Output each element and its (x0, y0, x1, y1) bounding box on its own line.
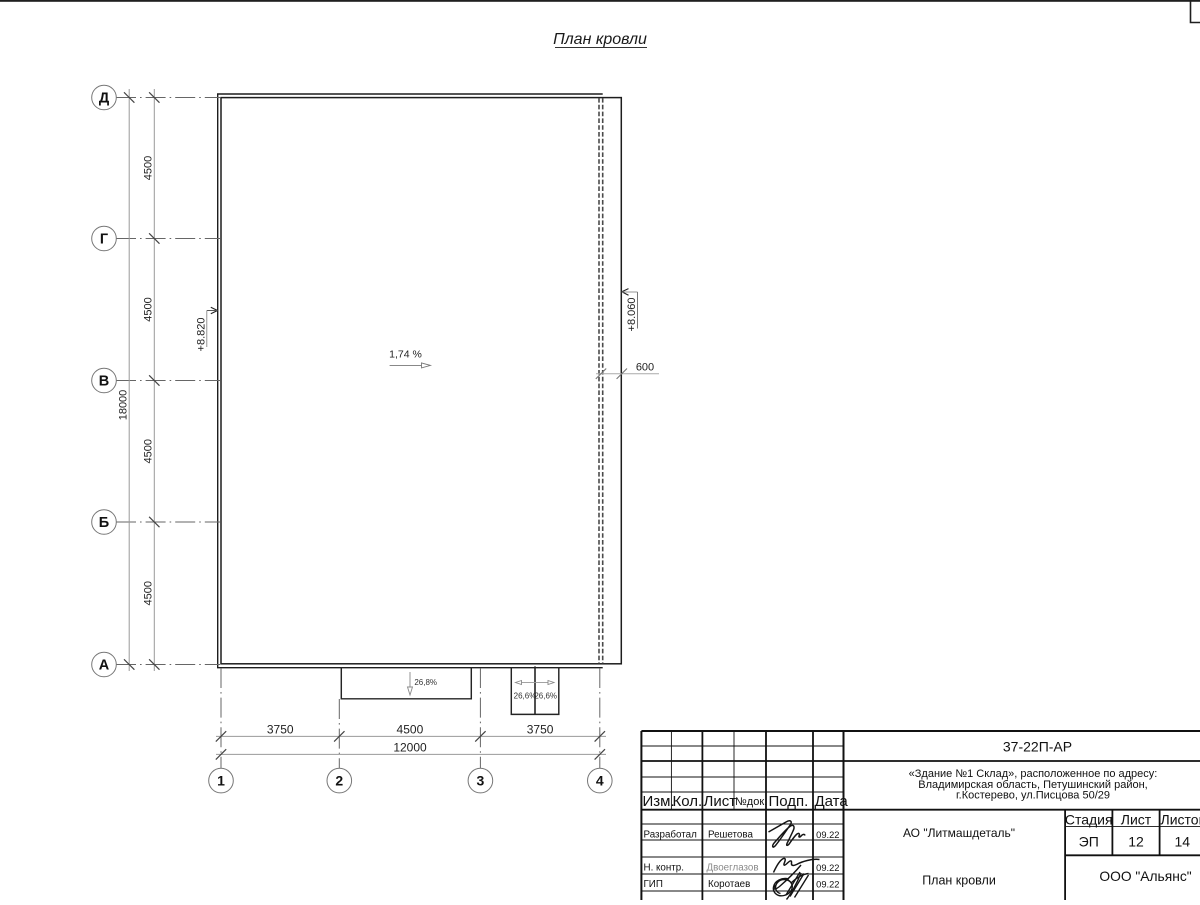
svg-text:3: 3 (477, 773, 485, 789)
svg-text:Н. контр.: Н. контр. (644, 863, 684, 874)
svg-text:Двоеглазов: Двоеглазов (707, 863, 759, 874)
svg-text:4500: 4500 (397, 723, 424, 737)
svg-text:Б: Б (99, 515, 109, 531)
svg-text:3750: 3750 (527, 723, 554, 737)
svg-text:4: 4 (596, 773, 604, 789)
svg-text:Д: Д (99, 91, 110, 107)
svg-text:+8.060: +8.060 (626, 298, 638, 332)
svg-text:План кровли: План кровли (553, 31, 647, 48)
svg-text:09.22: 09.22 (816, 880, 839, 890)
svg-text:План кровли: План кровли (922, 874, 996, 888)
svg-text:14: 14 (1175, 834, 1191, 850)
svg-text:37-22П-АР: 37-22П-АР (1003, 739, 1072, 755)
svg-text:Лист: Лист (704, 793, 737, 810)
svg-text:600: 600 (636, 362, 654, 374)
svg-text:3750: 3750 (267, 723, 294, 737)
svg-text:4500: 4500 (143, 297, 155, 321)
svg-text:Г: Г (100, 232, 108, 248)
svg-text:А: А (99, 658, 110, 674)
svg-text:26,6%: 26,6% (534, 692, 557, 701)
svg-text:АО "Литмашдеталь": АО "Литмашдеталь" (903, 826, 1015, 840)
svg-text:18000: 18000 (118, 390, 130, 421)
svg-text:Коротаев: Коротаев (708, 879, 750, 890)
svg-text:г.Костерево, ул.Писцова 50/29: г.Костерево, ул.Писцова 50/29 (956, 790, 1110, 802)
svg-text:12: 12 (1128, 834, 1144, 850)
svg-text:Изм.: Изм. (643, 793, 675, 810)
svg-text:В: В (99, 374, 109, 390)
svg-text:ЭП: ЭП (1079, 834, 1099, 850)
svg-text:2: 2 (335, 773, 343, 789)
svg-text:Лист: Лист (1121, 812, 1152, 828)
svg-text:Дата: Дата (815, 793, 849, 810)
svg-text:26,8%: 26,8% (414, 678, 437, 687)
svg-text:Подп.: Подп. (769, 793, 809, 810)
svg-text:Листов: Листов (1161, 812, 1200, 828)
svg-text:4500: 4500 (143, 156, 155, 180)
svg-text:4500: 4500 (143, 581, 155, 605)
svg-text:№док.: №док. (735, 796, 767, 808)
svg-text:09.22: 09.22 (816, 830, 839, 840)
svg-text:Решетова: Решетова (708, 830, 753, 841)
svg-text:26,6%: 26,6% (514, 692, 537, 701)
svg-text:ООО "Альянс": ООО "Альянс" (1099, 869, 1191, 884)
svg-text:09.22: 09.22 (816, 863, 839, 873)
svg-text:4500: 4500 (143, 439, 155, 463)
svg-text:1: 1 (217, 773, 225, 789)
svg-text:Разработал: Разработал (644, 830, 698, 841)
svg-text:Кол.: Кол. (673, 793, 703, 810)
svg-text:1,74 %: 1,74 % (389, 349, 422, 361)
svg-text:ГИП: ГИП (644, 879, 663, 890)
svg-text:12000: 12000 (393, 741, 427, 755)
svg-text:+8.820: +8.820 (196, 318, 208, 352)
svg-text:Стадия: Стадия (1065, 812, 1113, 828)
